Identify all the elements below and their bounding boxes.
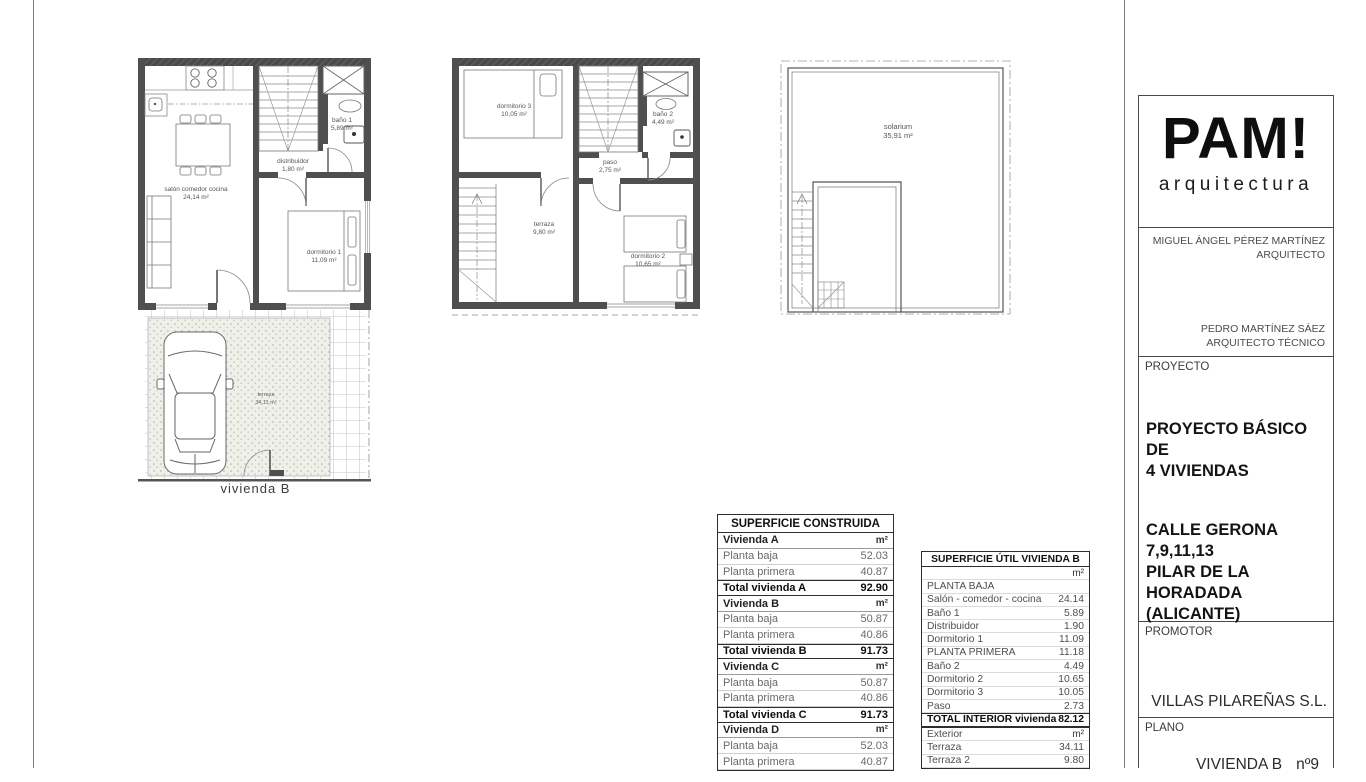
staircase (259, 66, 318, 151)
room-label-solarium: solarium (884, 122, 912, 131)
kitchen (145, 66, 253, 116)
sink (339, 100, 361, 112)
proyecto-section-label: PROYECTO (1139, 357, 1333, 373)
table-row: Exteriorm² (922, 728, 1089, 741)
unit-label: m² (876, 598, 888, 609)
room-label-distribuidor: distribuidor (277, 158, 310, 165)
superficie-exterior-table: Exteriorm² Terraza34.11 Terraza 29.80 (921, 727, 1090, 769)
title-block-architects-section: MIGUEL ÁNGEL PÉREZ MARTÍNEZ ARQUITECTO P… (1139, 228, 1333, 357)
group-name: Vivienda B (723, 598, 779, 610)
car-top-view (157, 332, 233, 474)
table-row: Baño 24.49 (922, 660, 1089, 673)
project-address-line2: 7,9,11,13 (1139, 541, 1333, 562)
studio-logo-subtitle: arquitectura (1139, 174, 1333, 196)
room-area-bano1: 5,89 m² (331, 125, 354, 132)
room-label-salon: salón comedor cocina (164, 186, 228, 193)
sofa (147, 196, 171, 288)
architectural-sheet: { "plans": { "planta_baja": { "rooms": {… (0, 0, 1366, 768)
title-block-promotor-section: PROMOTOR VILLAS PILAREÑAS S.L. (1139, 622, 1333, 718)
table-row-total: TOTAL INTERIOR vivienda82.12 (922, 713, 1089, 726)
table-row: Planta baja52.03 (718, 549, 893, 565)
sheet-border-left (33, 0, 34, 768)
plano-section-label: PLANO (1139, 718, 1333, 734)
staircase-down (459, 184, 496, 302)
unit-label: m² (876, 724, 888, 735)
kitchen-sink (145, 94, 167, 116)
floorplan-planta-primera-svg: dormitorio 3 10,05 m² baño 2 4,49 m² pas… (452, 56, 702, 322)
car-mirror-right (226, 379, 233, 389)
table-row: Paso2.73 (922, 700, 1089, 713)
table-row: Planta baja50.87 (718, 675, 893, 691)
technical-architect-credit: PEDRO MARTÍNEZ SÁEZ ARQUITECTO TÉCNICO (1201, 322, 1325, 350)
floorplan-planta-baja: salón comedor cocina 24,14 m² distribuid… (138, 56, 373, 508)
room-area-terraza: 34,11 m² (255, 400, 276, 406)
title-block: PAM! arquitectura MIGUEL ÁNGEL PÉREZ MAR… (1138, 95, 1334, 768)
room-area-bano2: 4,49 m² (652, 119, 675, 126)
solarium-walls (788, 68, 1003, 312)
room-label-dormitorio3: dormitorio 3 (497, 103, 532, 110)
table-row: Vivienda Cm² (718, 659, 893, 675)
table-row: Vivienda Bm² (718, 596, 893, 612)
nightstand (680, 254, 692, 265)
table-row: Distribuidor1.90 (922, 620, 1089, 633)
table-row: Planta primera40.86 (718, 691, 893, 707)
table-row: Dormitorio 310.05 (922, 687, 1089, 700)
room-label-paso: paso (603, 159, 617, 166)
table-row-total: Total vivienda B91.73 (718, 644, 893, 660)
sink (656, 99, 676, 110)
title-block-plano-section: PLANO VIVIENDA Bnº9 (1139, 718, 1333, 782)
stove (186, 66, 224, 90)
room-area-dormitorio2: 10,65 m² (635, 261, 661, 268)
project-address-line3: PILAR DE LA HORADADA (1139, 562, 1333, 604)
room-area-terraza: 9,80 m² (533, 229, 556, 236)
table-row: m² (922, 567, 1089, 580)
room-label-bano2: baño 2 (653, 111, 673, 118)
table-row-total: Total vivienda A92.90 (718, 580, 893, 596)
plan-caption-vivienda-b: vivienda B (138, 481, 373, 496)
floorplan-solarium: solarium 35,91 m² (777, 56, 1017, 326)
floorplan-planta-baja-svg: salón comedor cocina 24,14 m² distribuid… (138, 56, 373, 508)
table-row: Dormitorio 111.09 (922, 633, 1089, 646)
bathroom-2-fixtures (643, 72, 690, 146)
table-row: Planta primera40.86 (718, 628, 893, 644)
bedroom-window (364, 201, 371, 253)
table-row-total: Total vivienda C91.73 (718, 707, 893, 723)
group-name: Vivienda A (723, 534, 779, 546)
studio-logo: PAM! (1139, 110, 1333, 168)
table-row: Planta baja50.87 (718, 612, 893, 628)
superficie-construida-table: SUPERFICIE CONSTRUIDA Vivienda Am² Plant… (717, 514, 894, 771)
unit-label: m² (876, 535, 888, 546)
promotor-section-label: PROMOTOR (1139, 622, 1333, 638)
room-area-dormitorio3: 10,05 m² (501, 111, 527, 118)
unit-label: m² (876, 661, 888, 672)
table-row: Vivienda Am² (718, 533, 893, 549)
table-row: PLANTA PRIMERA11.18 (922, 647, 1089, 660)
plano-name: VIVIENDA Bnº9 (1196, 756, 1319, 774)
table-row: Terraza 29.80 (922, 755, 1089, 768)
technical-architect-name: PEDRO MARTÍNEZ SÁEZ (1201, 322, 1325, 336)
table-row: Planta baja52.03 (718, 738, 893, 754)
table-row: Planta primera40.87 (718, 565, 893, 581)
table-row: Terraza34.11 (922, 741, 1089, 754)
plano-number: nº9 (1296, 756, 1319, 773)
room-area-solarium: 35,91 m² (883, 131, 913, 140)
table-row: Baño 15.89 (922, 607, 1089, 620)
table-title: SUPERFICIE ÚTIL VIVIENDA B (922, 552, 1089, 567)
project-address-line1: CALLE GERONA (1139, 520, 1333, 541)
group-name: Vivienda D (723, 724, 779, 736)
table-title-text: SUPERFICIE CONSTRUIDA (731, 518, 880, 530)
superficie-util-table: SUPERFICIE ÚTIL VIVIENDA B m² PLANTA BAJ… (921, 551, 1090, 728)
bottom-window (607, 302, 675, 309)
unit-label: m² (1072, 568, 1084, 579)
table-row: Dormitorio 210.65 (922, 673, 1089, 686)
room-label-terraza: terraza (534, 221, 555, 228)
unit-label: m² (1072, 729, 1084, 740)
dining-table (176, 115, 230, 175)
floorplan-solarium-svg: solarium 35,91 m² (777, 56, 1017, 326)
sheet-border-right (1124, 0, 1125, 768)
table-row: Vivienda Dm² (718, 723, 893, 739)
room-area-salon: 24,14 m² (183, 194, 209, 201)
table-row: PLANTA BAJA (922, 580, 1089, 593)
architect-credit: MIGUEL ÁNGEL PÉREZ MARTÍNEZ ARQUITECTO (1153, 234, 1325, 262)
staircase-up (579, 66, 638, 152)
plano-title: VIVIENDA B (1196, 756, 1282, 773)
project-title-line1: PROYECTO BÁSICO DE (1139, 419, 1333, 461)
room-label-bano1: baño 1 (332, 117, 352, 124)
table-title: SUPERFICIE CONSTRUIDA (718, 515, 893, 533)
room-area-distribuidor: 1,80 m² (282, 166, 305, 173)
table-title-text: SUPERFICIE ÚTIL VIVIENDA B (931, 554, 1080, 565)
room-label-dormitorio2: dormitorio 2 (631, 253, 666, 260)
architect-name: MIGUEL ÁNGEL PÉREZ MARTÍNEZ (1153, 234, 1325, 248)
architect-role: ARQUITECTO (1153, 248, 1325, 262)
room-area-dormitorio1: 11,09 m² (311, 257, 337, 264)
table-row: Salón - comedor - cocina24.14 (922, 594, 1089, 607)
room-label-dormitorio1: dormitorio 1 (307, 249, 342, 256)
title-block-proyecto-section: PROYECTO PROYECTO BÁSICO DE 4 VIVIENDAS … (1139, 357, 1333, 622)
car-mirror-left (157, 379, 164, 389)
room-label-terraza: terraza (257, 392, 275, 398)
room-area-paso: 2,75 m² (599, 167, 622, 174)
floorplan-planta-primera: dormitorio 3 10,05 m² baño 2 4,49 m² pas… (452, 56, 702, 322)
group-name: Vivienda C (723, 661, 779, 673)
project-title-line2: 4 VIVIENDAS (1139, 461, 1333, 482)
title-block-logo-section: PAM! arquitectura (1139, 110, 1333, 228)
technical-architect-role: ARQUITECTO TÉCNICO (1201, 336, 1325, 350)
promotor-name: VILLAS PILAREÑAS S.L. (1151, 693, 1327, 711)
room-labels: solarium 35,91 m² (883, 122, 913, 140)
